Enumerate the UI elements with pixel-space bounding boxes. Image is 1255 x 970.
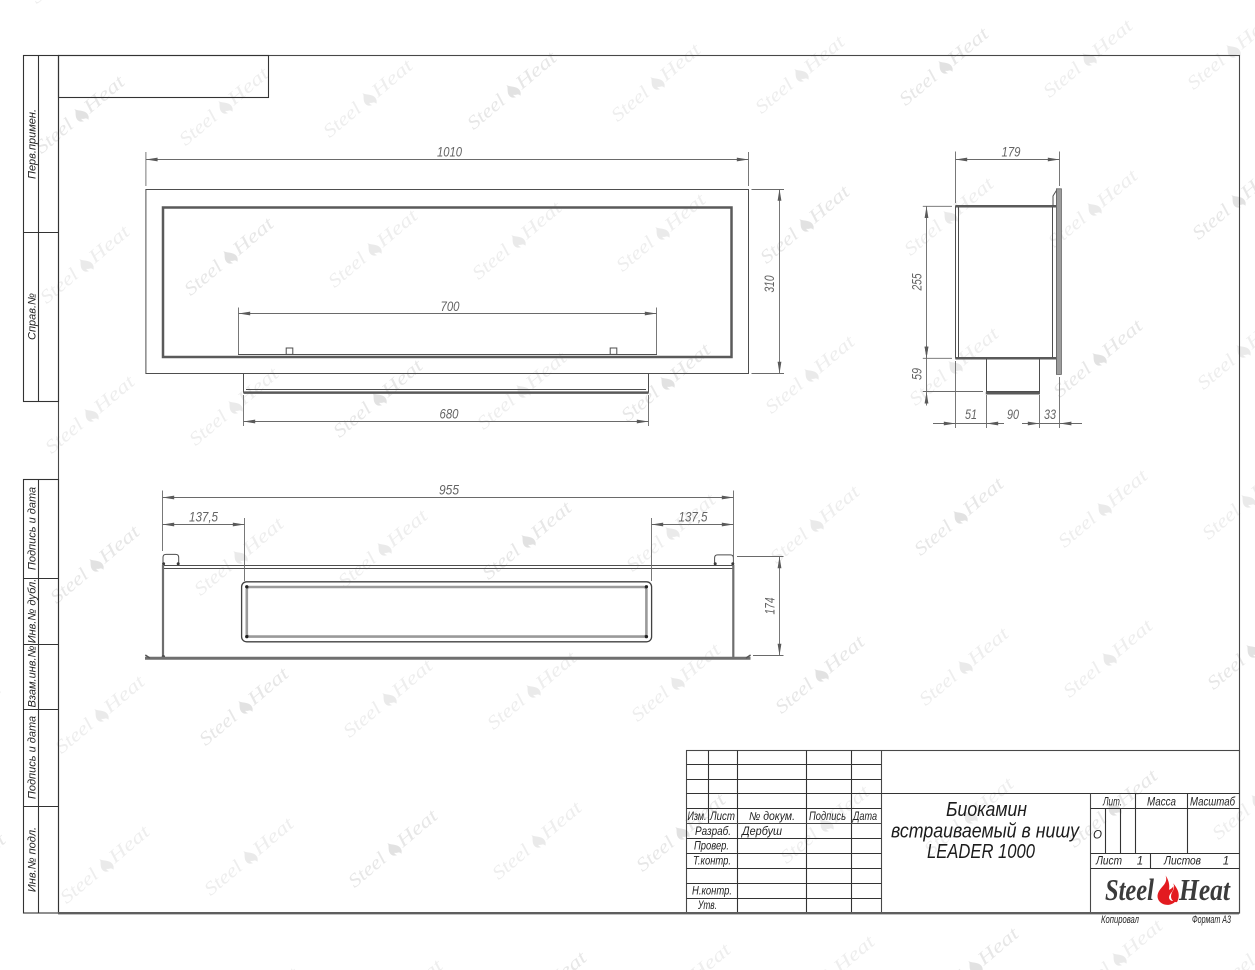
svg-text:Heat: Heat: [819, 631, 870, 679]
svg-text:Steel: Steel: [329, 398, 375, 442]
svg-text:1: 1: [1137, 856, 1143, 868]
svg-text:Heat: Heat: [660, 189, 711, 237]
svg-text:Изм.: Изм.: [688, 811, 707, 823]
svg-text:Heat: Heat: [382, 505, 433, 553]
svg-text:Steel: Steel: [463, 90, 509, 134]
svg-text:Heat: Heat: [953, 323, 1004, 371]
svg-text:Steel: Steel: [185, 406, 231, 450]
svg-text:Инв.№ дубл.: Инв.№ дубл.: [27, 579, 39, 644]
svg-text:Подпись и дата: Подпись и дата: [27, 716, 39, 799]
svg-text:Дербуш: Дербуш: [740, 826, 782, 838]
svg-text:Справ.№: Справ.№: [27, 293, 39, 340]
svg-text:Steel: Steel: [344, 848, 390, 892]
svg-text:Steel: Steel: [1213, 950, 1255, 970]
svg-text:Масса: Масса: [1147, 796, 1176, 808]
svg-text:Heat: Heat: [1092, 165, 1143, 213]
svg-text:Heat: Heat: [829, 931, 880, 970]
svg-text:Heat: Heat: [531, 647, 582, 695]
svg-text:Лит.: Лит.: [1102, 796, 1122, 808]
svg-text:Steel: Steel: [900, 216, 946, 260]
svg-text:Steel: Steel: [761, 374, 807, 418]
svg-text:Steel: Steel: [195, 706, 241, 750]
svg-text:Steel: Steel: [766, 524, 812, 568]
svg-text:Steel: Steel: [324, 248, 370, 292]
svg-text:Steel: Steel: [468, 240, 514, 284]
svg-text:Steel: Steel: [46, 564, 92, 608]
svg-text:Steel: Steel: [483, 690, 529, 734]
svg-text:Heat: Heat: [675, 639, 726, 687]
svg-text:Heat: Heat: [89, 371, 140, 419]
svg-text:Биокамин: Биокамин: [946, 799, 1027, 821]
svg-text:179: 179: [1002, 144, 1021, 160]
svg-text:Heat: Heat: [1178, 872, 1231, 907]
svg-text:Heat: Heat: [223, 63, 274, 111]
svg-text:Подпись и дата: Подпись и дата: [27, 487, 39, 570]
svg-text:Heat: Heat: [516, 197, 567, 245]
svg-text:Steel: Steel: [1183, 50, 1229, 94]
svg-text:Heat: Heat: [248, 813, 299, 861]
svg-text:Steel: Steel: [334, 548, 380, 592]
svg-text:Heat: Heat: [84, 221, 135, 269]
svg-text:Steel: Steel: [895, 66, 941, 110]
svg-text:Инв.№ подл.: Инв.№ подл.: [27, 827, 39, 892]
svg-text:Heat: Heat: [521, 347, 572, 395]
svg-text:Steel: Steel: [1198, 500, 1244, 544]
svg-text:Steel: Steel: [1059, 658, 1105, 702]
svg-text:137,5: 137,5: [189, 509, 218, 525]
svg-text:310: 310: [761, 275, 777, 292]
svg-text:33: 33: [1044, 406, 1056, 422]
svg-text:Steel: Steel: [175, 106, 221, 150]
svg-text:Steel: Steel: [771, 674, 817, 718]
svg-text:Steel: Steel: [1069, 958, 1115, 970]
svg-text:Heat: Heat: [541, 947, 592, 970]
svg-text:Steel: Steel: [36, 264, 82, 308]
svg-text:Heat: Heat: [804, 181, 855, 229]
svg-text:Масштаб: Масштаб: [1190, 796, 1235, 808]
svg-text:1010: 1010: [437, 144, 462, 160]
svg-text:Heat: Heat: [253, 963, 304, 970]
svg-text:Steel: Steel: [607, 82, 653, 126]
svg-text:Steel: Steel: [41, 414, 87, 458]
svg-text:Копировал: Копировал: [1101, 914, 1139, 926]
svg-text:Heat: Heat: [536, 797, 587, 845]
svg-text:Heat: Heat: [943, 23, 994, 71]
svg-text:Heat: Heat: [973, 923, 1024, 970]
svg-text:Steel: Steel: [925, 966, 971, 970]
svg-text:Steel: Steel: [910, 516, 956, 560]
svg-text:137,5: 137,5: [679, 509, 708, 525]
svg-text:Steel: Steel: [488, 840, 534, 884]
svg-text:Steel: Steel: [751, 74, 797, 118]
svg-text:Heat: Heat: [1102, 465, 1153, 513]
svg-text:Heat: Heat: [387, 655, 438, 703]
svg-text:Steel: Steel: [1039, 58, 1085, 102]
svg-text:Steel: Steel: [627, 682, 673, 726]
svg-text:Heat: Heat: [665, 339, 716, 387]
svg-text:Steel: Steel: [56, 864, 102, 908]
svg-text:Провер.: Провер.: [694, 841, 729, 853]
svg-text:Steel: Steel: [622, 532, 668, 576]
svg-text:90: 90: [1007, 406, 1019, 422]
svg-text:Heat: Heat: [655, 39, 706, 87]
svg-text:Перв.примен.: Перв.примен.: [27, 109, 39, 179]
svg-text:Heat: Heat: [94, 521, 145, 569]
svg-text:255: 255: [909, 273, 925, 291]
svg-text:680: 680: [440, 406, 459, 422]
svg-text:Лист: Лист: [709, 811, 735, 823]
svg-text:Steel: Steel: [632, 832, 678, 876]
svg-text:Н.контр.: Н.контр.: [692, 885, 732, 897]
svg-text:Взам.инв.№: Взам.инв.№: [27, 645, 39, 707]
svg-text:Steel: Steel: [1193, 350, 1239, 394]
svg-text:51: 51: [965, 406, 977, 422]
svg-text:Steel: Steel: [1054, 508, 1100, 552]
svg-text:Подпись: Подпись: [809, 811, 846, 823]
svg-text:Heat: Heat: [104, 821, 155, 869]
svg-text:Heat: Heat: [799, 31, 850, 79]
svg-text:Steel: Steel: [473, 390, 519, 434]
svg-text:Heat: Heat: [367, 55, 418, 103]
svg-text:Steel: Steel: [1105, 872, 1154, 907]
svg-text:Heat: Heat: [1107, 615, 1158, 663]
svg-text:Heat: Heat: [392, 805, 443, 853]
svg-text:Heat: Heat: [397, 955, 448, 970]
svg-text:Heat: Heat: [809, 331, 860, 379]
svg-text:174: 174: [762, 597, 778, 614]
svg-text:Steel: Steel: [339, 698, 385, 742]
svg-text:Формат А3: Формат А3: [1192, 914, 1232, 926]
svg-text:Heat: Heat: [372, 205, 423, 253]
svg-text:Листов: Листов: [1163, 856, 1201, 868]
svg-text:700: 700: [441, 298, 460, 314]
svg-text:Steel: Steel: [180, 256, 226, 300]
svg-text:Steel: Steel: [190, 556, 236, 600]
svg-text:Steel: Steel: [319, 98, 365, 142]
svg-text:Heat: Heat: [243, 663, 294, 711]
svg-text:Steel: Steel: [1188, 200, 1234, 244]
svg-text:955: 955: [439, 482, 459, 498]
svg-text:Heat: Heat: [958, 473, 1009, 521]
svg-text:Heat: Heat: [814, 481, 865, 529]
svg-text:Steel: Steel: [1203, 650, 1249, 694]
svg-text:Heat: Heat: [0, 829, 11, 877]
svg-text:№ докум.: № докум.: [749, 811, 795, 823]
svg-text:Дата: Дата: [851, 811, 877, 823]
svg-text:Т.контр.: Т.контр.: [693, 855, 731, 867]
svg-text:встраиваемый в нишу: встраиваемый в нишу: [891, 821, 1080, 843]
svg-text:Heat: Heat: [511, 47, 562, 95]
svg-text:Heat: Heat: [79, 71, 130, 119]
svg-text:Steel: Steel: [478, 540, 524, 584]
svg-text:Heat: Heat: [1097, 315, 1148, 363]
svg-text:Утв.: Утв.: [697, 900, 717, 912]
svg-text:59: 59: [909, 368, 925, 380]
svg-text:Разраб.: Разраб.: [695, 826, 731, 838]
svg-text:Heat: Heat: [228, 213, 279, 261]
svg-text:Steel: Steel: [1044, 208, 1090, 252]
svg-text:Heat: Heat: [0, 529, 1, 577]
svg-text:LEADER 1000: LEADER 1000: [927, 841, 1035, 863]
svg-text:1: 1: [1223, 856, 1229, 868]
svg-text:Heat: Heat: [99, 671, 150, 719]
svg-text:О: О: [1093, 830, 1102, 842]
svg-text:Heat: Heat: [963, 623, 1014, 671]
svg-text:Steel: Steel: [200, 856, 246, 900]
svg-text:Steel: Steel: [776, 824, 822, 868]
svg-text:Steel: Steel: [915, 666, 961, 710]
svg-text:Steel: Steel: [612, 232, 658, 276]
svg-text:Heat: Heat: [233, 363, 284, 411]
svg-text:Heat: Heat: [685, 939, 736, 970]
svg-text:Heat: Heat: [238, 513, 289, 561]
svg-text:Steel: Steel: [26, 0, 72, 8]
svg-text:Лист: Лист: [1095, 856, 1122, 868]
svg-text:Heat: Heat: [377, 355, 428, 403]
svg-text:Heat: Heat: [526, 497, 577, 545]
svg-text:Heat: Heat: [0, 679, 6, 727]
